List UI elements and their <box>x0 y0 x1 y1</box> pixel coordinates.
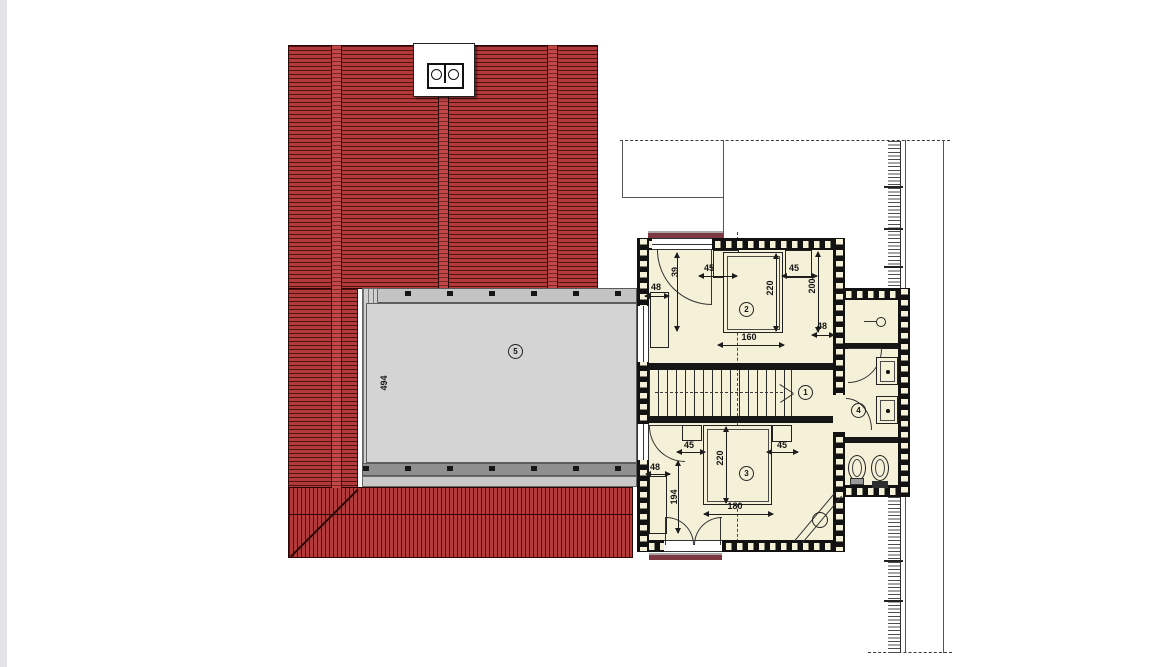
dim-room3-nightstand-left: 45 <box>681 440 697 450</box>
floor-plan-drawing: 494 5 1 2 48 39 45 220 45 200 <box>0 0 1170 667</box>
sink-drain-dot <box>886 409 890 413</box>
chimney-flue-box <box>427 63 464 89</box>
vent-symbol <box>876 317 886 327</box>
dim-room2-bed-length: 220 <box>765 276 775 300</box>
dim-line <box>646 474 670 475</box>
page-edge-strip <box>0 0 7 667</box>
terrace-surface <box>366 303 637 463</box>
dim-line <box>704 514 773 515</box>
bath-partition-lower <box>845 437 898 443</box>
boundary-dashed-line-bottom <box>868 652 952 653</box>
room-label-bathroom: 4 <box>851 403 866 418</box>
room3-bed <box>703 425 772 505</box>
boundary-fence-ruler-lower <box>888 497 901 653</box>
window-top <box>652 238 712 250</box>
chimney-flue-right-icon <box>448 69 459 80</box>
dim-room2-closet: 48 <box>648 282 664 292</box>
room-label-bedroom-bottom: 3 <box>739 466 754 481</box>
dim-line <box>677 253 678 331</box>
dim-line <box>776 254 777 331</box>
dim-line <box>726 427 727 503</box>
roof-bottom-slope <box>288 487 633 558</box>
room-label-bedroom-top: 2 <box>739 302 754 317</box>
stair-wall-top <box>649 363 833 370</box>
bidet <box>871 455 889 481</box>
dim-line <box>645 296 669 297</box>
stair-walk-line <box>655 392 783 393</box>
roof-ridge-middle <box>438 93 449 289</box>
property-line-outer <box>943 140 944 653</box>
dim-line <box>812 335 834 336</box>
dim-room3-bed-width: 180 <box>723 501 747 511</box>
wing-wall-right <box>898 288 910 497</box>
setback-line-left <box>622 140 623 198</box>
stair-treads <box>649 370 791 416</box>
roof-left-slope <box>288 288 358 488</box>
canopy-edge-bottom <box>649 553 722 560</box>
bathroom-sink-upper <box>876 357 898 385</box>
dim-room2-door: 39 <box>670 264 680 280</box>
ruler-major-tick <box>884 186 903 188</box>
sink-drain-dot <box>886 370 890 374</box>
dim-room2-nightstand-right: 45 <box>786 263 802 273</box>
chimney-flue-left-icon <box>431 69 442 80</box>
roof-ridge-left <box>331 45 342 488</box>
downpipe-symbol <box>812 512 828 528</box>
bathroom-sink-lower <box>876 396 898 424</box>
vent-symbol-stem <box>864 321 877 322</box>
dim-line <box>767 452 798 453</box>
dim-room3-nightstand-right: 45 <box>774 440 790 450</box>
dim-line <box>699 276 737 277</box>
terrace-door-opening <box>637 306 649 362</box>
room2-closet <box>650 292 669 348</box>
setback-line-bottom <box>622 197 724 198</box>
dim-room2-bed-width: 160 <box>737 332 761 342</box>
chimney-flue-divider <box>444 65 446 83</box>
ruler-major-tick <box>884 600 903 602</box>
dim-room2-right-width: 48 <box>814 321 830 331</box>
toilet-tank <box>850 478 864 485</box>
room-label-terrace: 5 <box>508 344 523 359</box>
dim-room2-nightstand-left: 45 <box>701 263 717 273</box>
setback-line-vertical <box>723 140 724 239</box>
dim-line <box>677 452 705 453</box>
dim-room2-wall-depth: 200 <box>807 274 817 298</box>
roof-eave-line <box>288 514 633 515</box>
room3-door-opening <box>637 424 649 460</box>
bathroom-door-opening <box>833 395 845 432</box>
room3-nightstand-left <box>682 425 702 441</box>
dim-room3-bed-length: 220 <box>715 446 725 470</box>
chimney <box>413 43 475 97</box>
ruler-major-tick <box>884 560 903 562</box>
canopy-edge-top <box>648 231 723 238</box>
dim-line <box>718 345 784 346</box>
terrace-bottom-edge <box>362 463 637 476</box>
dim-line <box>818 252 819 332</box>
terrace-depth-dim: 494 <box>379 371 389 395</box>
ruler-major-tick <box>884 266 903 268</box>
room-label-stairs: 1 <box>798 385 813 400</box>
bidet-tank <box>872 481 888 488</box>
roof-ridge-right <box>547 45 558 289</box>
stair-wall-bottom <box>649 416 833 423</box>
terrace-top-edge <box>362 288 637 303</box>
terrace-bottom-rim <box>362 476 637 487</box>
ruler-major-tick <box>884 228 903 230</box>
